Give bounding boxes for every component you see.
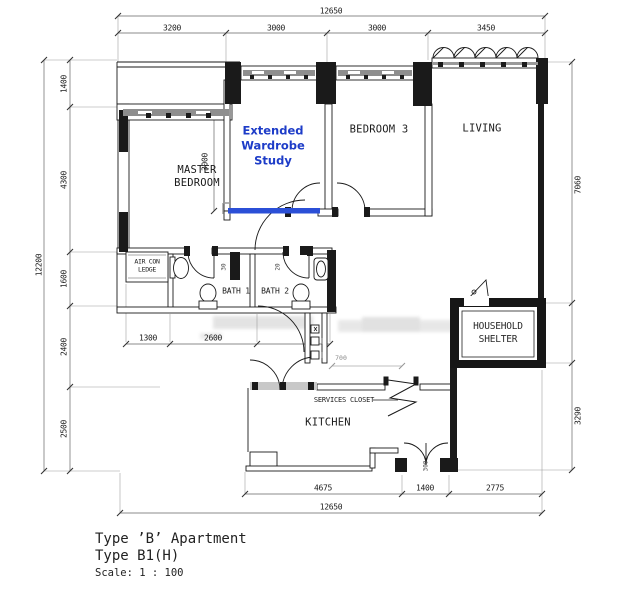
dim-door-mark-3: 300 — [423, 461, 430, 472]
dim-top-seg-2: 3000 — [267, 24, 285, 33]
extended-wardrobe-line2: Wardrobe — [241, 139, 305, 154]
bathroom-fixtures — [170, 257, 328, 309]
master-bedroom-line1: MASTER — [174, 164, 220, 177]
dim-services: 700 — [335, 354, 347, 362]
household-shelter-line2: SHELTER — [473, 333, 523, 346]
dim-right-seg-2: 3290 — [574, 407, 583, 425]
title-plan-type: Type B1(H) — [95, 548, 179, 564]
dim-bath-width: 2600 — [204, 334, 222, 343]
extended-wardrobe-line1: Extended — [241, 124, 305, 139]
dim-left-overall: 12200 — [35, 254, 44, 277]
title-apartment-type: Type ’B’ Apartment — [95, 531, 247, 547]
dim-aircon-width: 1300 — [139, 334, 157, 343]
dim-bottom-seg-2: 1400 — [416, 484, 434, 493]
room-label-bath1: BATH 1 — [222, 287, 250, 296]
dim-top-seg-3: 3000 — [368, 24, 386, 33]
dim-bottom-seg-1: 4675 — [314, 484, 332, 493]
room-label-household-shelter: HOUSEHOLD SHELTER — [473, 320, 523, 346]
floor-plan-drawing — [0, 0, 624, 600]
dim-top-overall: 12650 — [320, 7, 343, 16]
floor-plan: 12650 3200 3000 3000 3450 12200 1400 430… — [0, 0, 624, 600]
aircon-ledge-line2: LEDGE — [134, 266, 159, 274]
dim-top-seg-1: 3200 — [163, 24, 181, 33]
dim-left-seg-1: 1400 — [60, 75, 69, 93]
master-bedroom-line2: BEDROOM — [174, 177, 220, 190]
household-shelter-line1: HOUSEHOLD — [473, 320, 523, 333]
dim-left-seg-2: 4300 — [60, 171, 69, 189]
room-label-living: LIVING — [462, 123, 501, 136]
room-label-aircon-ledge: AIR CON LEDGE — [134, 259, 159, 274]
extension-lines — [44, 16, 572, 513]
highlighted-wall — [223, 203, 320, 214]
dim-right-seg-1: 7060 — [574, 176, 583, 194]
dim-bottom-seg-3: 2775 — [486, 484, 504, 493]
room-label-bedroom3: BEDROOM 3 — [350, 124, 409, 137]
extended-wardrobe-line3: Study — [241, 154, 305, 169]
dimension-ticks — [41, 13, 575, 516]
dim-left-seg-4: 2400 — [60, 338, 69, 356]
dim-door-mark-2: 20 — [275, 263, 282, 270]
room-label-extended-wardrobe-study: Extended Wardrobe Study — [241, 124, 305, 169]
room-label-kitchen: KITCHEN — [305, 417, 351, 430]
services-closet-symbol — [373, 377, 418, 416]
casement-window-arcs — [433, 48, 538, 59]
dim-top-seg-4: 3450 — [477, 24, 495, 33]
room-label-master-bedroom: MASTER BEDROOM — [174, 164, 220, 190]
dim-door-mark-1: 30 — [221, 263, 228, 270]
room-label-bath2: BATH 2 — [261, 287, 289, 296]
db-boxes — [311, 325, 322, 359]
watermark-smudge — [200, 316, 463, 339]
dim-left-seg-3: 1600 — [60, 270, 69, 288]
dimension-lines — [44, 16, 572, 513]
title-scale: Scale: 1 : 100 — [95, 567, 184, 579]
room-label-services-closet: SERVICES CLOSET — [314, 396, 374, 404]
dim-left-seg-5: 2500 — [60, 420, 69, 438]
dim-bottom-overall: 12650 — [320, 503, 343, 512]
